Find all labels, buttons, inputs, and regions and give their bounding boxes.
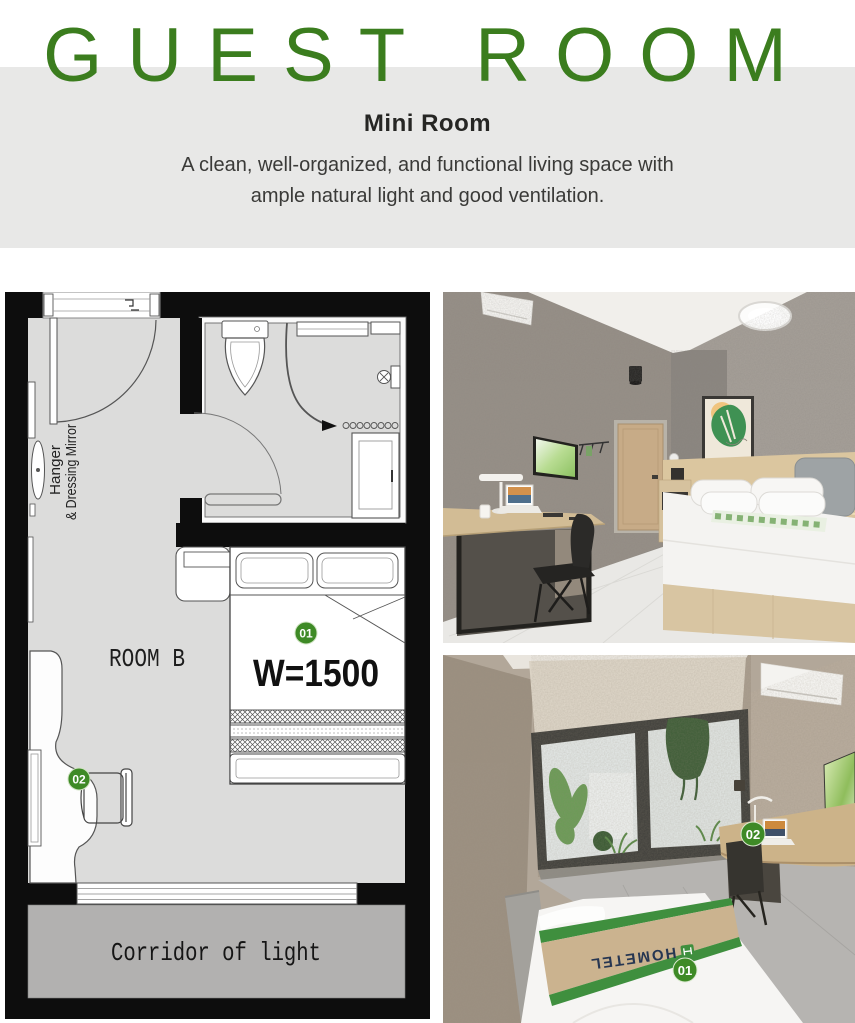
bathroom-shelf [297,322,400,336]
plan-badge-bed: 01 [295,622,317,644]
photo-badge-desk-label: 02 [746,827,760,842]
page-background: GUEST ROOM Mini Room A clean, well-organ… [0,0,855,1023]
floor-plan: W=1500 01 ROOM B Hanger & Dressing Mirro… [5,292,430,1019]
bed-width-label: W=1500 [253,653,379,695]
photo-room-window: HOMETEL 02 01 [443,655,855,1023]
hanger-label-line2: & Dressing Mirror [63,424,80,520]
plan-badge-desk: 02 [68,768,90,790]
page-title: GUEST ROOM [0,14,855,98]
room-type-subtitle: Mini Room [0,110,855,138]
photo-badge-desk: 02 [741,822,765,846]
nightstand-plan [176,547,230,601]
photo-badge-bed: 01 [673,958,697,982]
shower-tray [352,433,399,518]
bed-photo [659,452,855,643]
wall-mirror-plan [28,750,41,846]
room-label: ROOM B [109,644,185,674]
photo-room-overview [443,292,855,643]
photo-badge-bed-label: 01 [678,963,692,978]
monstera-artwork [702,396,754,464]
room-description-line1: A clean, well-organized, and functional … [0,150,855,181]
room-description: A clean, well-organized, and functional … [0,150,855,212]
plan-badge-bed-label: 01 [299,627,313,641]
corridor-label: Corridor of light [111,938,321,968]
plan-badge-desk-label: 02 [72,773,86,787]
hanger-label-line1: Hanger [47,445,64,495]
room-description-line2: ample natural light and good ventilation… [0,181,855,212]
wall-socket-icon [734,780,745,791]
window-plan [77,883,357,904]
cup-icon [480,505,490,518]
